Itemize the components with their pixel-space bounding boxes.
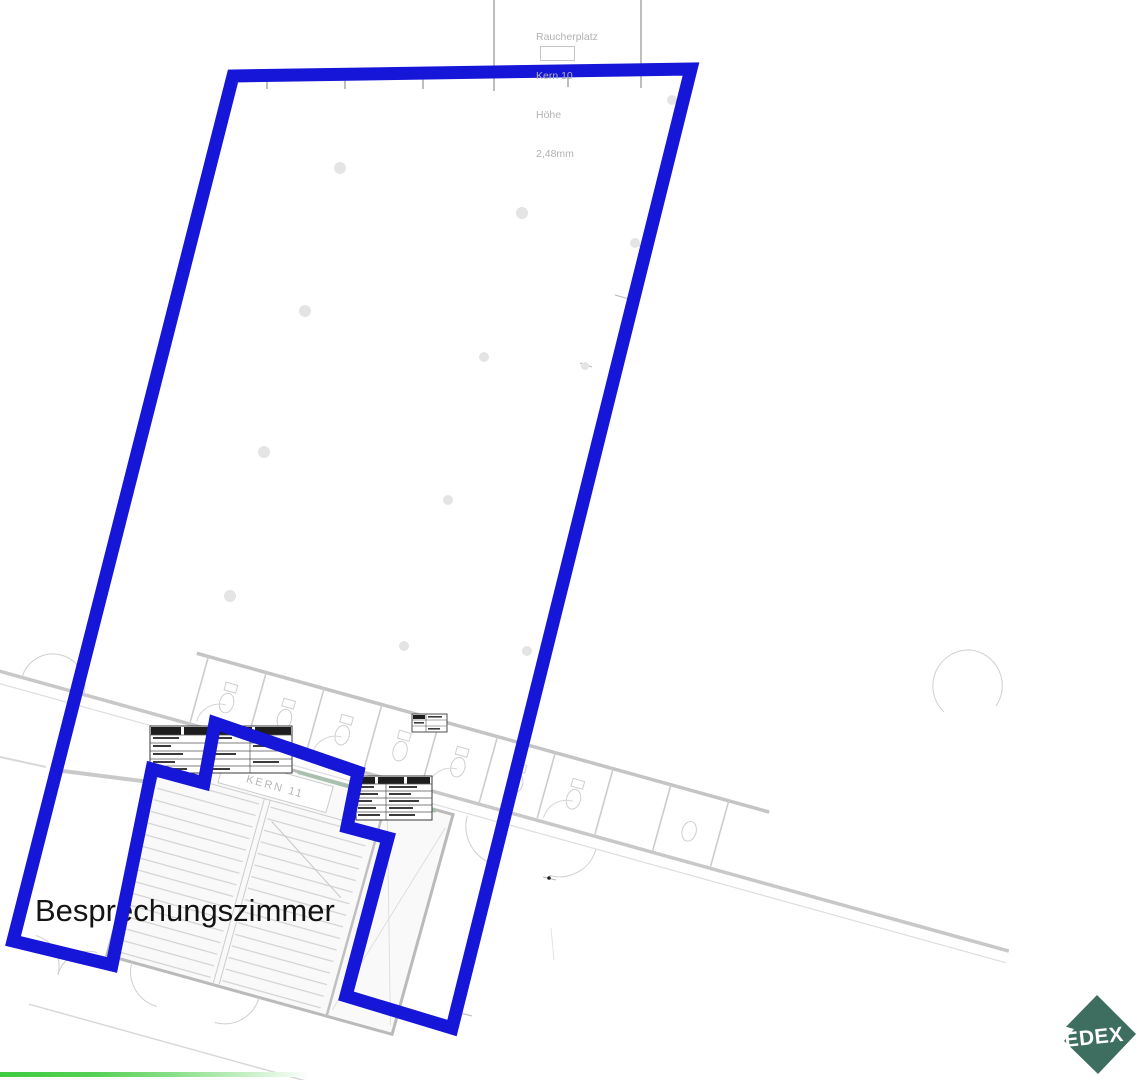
lower-wall <box>29 1004 357 1080</box>
annotation-line: Kern 10 <box>536 70 598 83</box>
annotation-line: Raucherplatz <box>536 31 598 44</box>
room-label: Besprechungszimmer <box>35 893 335 928</box>
floor-plan-page: KERN 11 <box>0 0 1139 1080</box>
logo: EDEX <box>1056 995 1136 1074</box>
stamp-table-2 <box>356 776 432 820</box>
survey-dot <box>547 876 551 880</box>
stamp-table-3 <box>412 714 447 732</box>
annotation-block: Raucherplatz Kern 10 Höhe 2,48mm <box>536 5 598 187</box>
rotated-plan: KERN 11 <box>0 574 1027 1080</box>
annotation-line: 2,48mm <box>536 148 598 161</box>
footer-gradient-bar <box>0 1072 310 1077</box>
annotation-line: Höhe <box>536 109 598 122</box>
stamp-table-1 <box>150 726 292 773</box>
